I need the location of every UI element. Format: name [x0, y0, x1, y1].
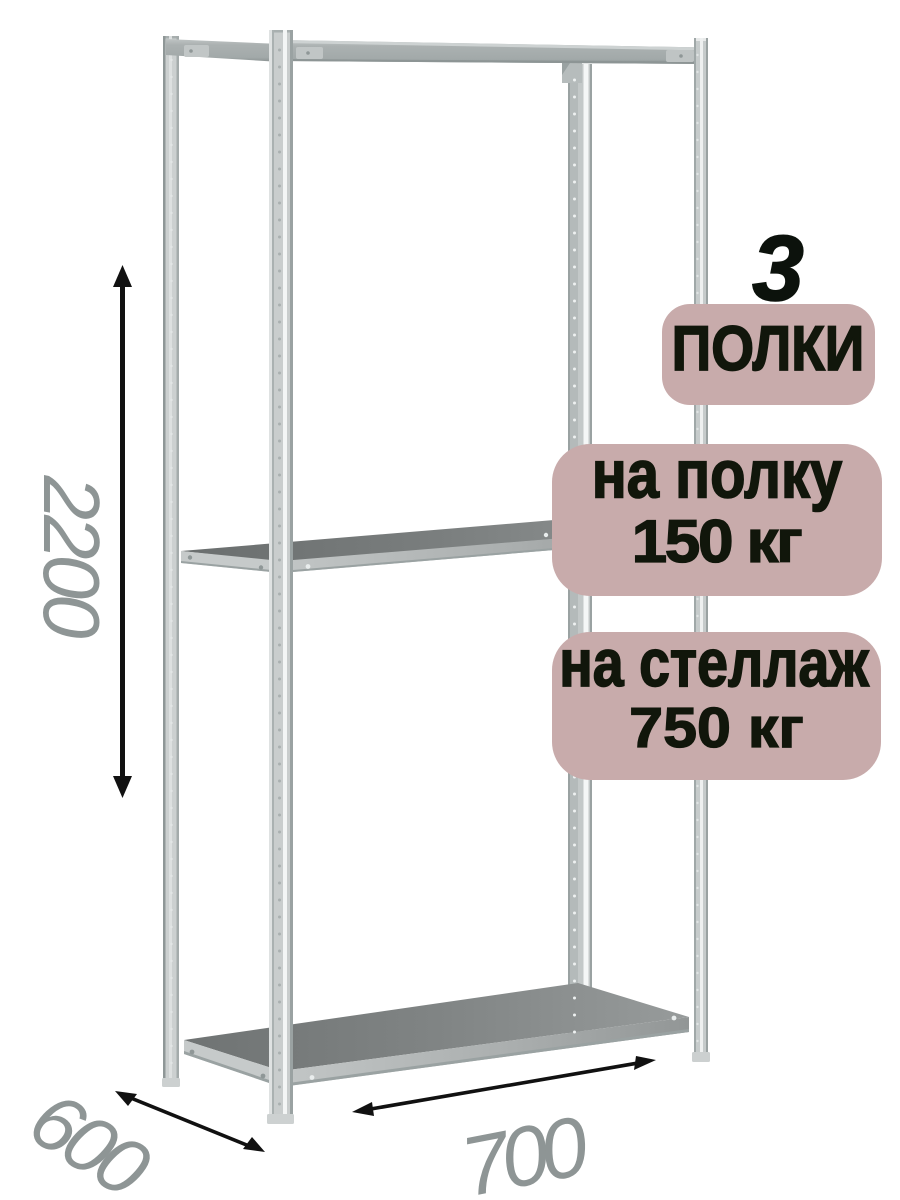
- svg-text:2200: 2200: [27, 475, 116, 638]
- svg-text:700: 700: [454, 1098, 596, 1200]
- svg-text:750 кг: 750 кг: [629, 697, 804, 760]
- svg-text:150 кг: 150 кг: [632, 509, 802, 576]
- svg-text:на полку: на полку: [592, 438, 843, 513]
- svg-text:600: 600: [15, 1074, 165, 1200]
- svg-text:на стеллаж: на стеллаж: [559, 626, 869, 700]
- svg-text:ПОЛКИ: ПОЛКИ: [672, 315, 865, 384]
